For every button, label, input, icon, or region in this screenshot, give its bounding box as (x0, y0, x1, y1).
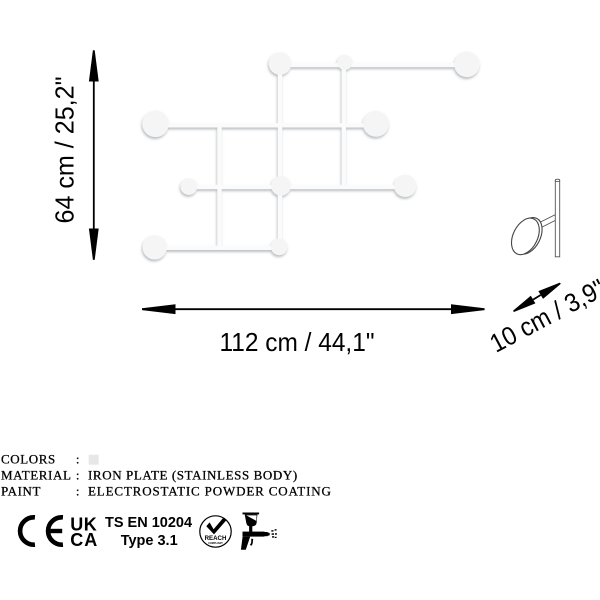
svg-text:64 cm / 25,2": 64 cm / 25,2" (50, 77, 80, 224)
svg-text::: : (76, 484, 80, 499)
svg-text:CA: CA (70, 530, 98, 550)
svg-text:MATERIAL: MATERIAL (1, 468, 72, 483)
svg-text::: : (76, 468, 80, 483)
svg-text:COLORS: COLORS (1, 452, 56, 467)
svg-text:112 cm / 44,1": 112 cm / 44,1" (220, 327, 375, 357)
svg-text:ELECTROSTATIC POWDER COATING: ELECTROSTATIC POWDER COATING (88, 484, 332, 499)
svg-text:COMPLIANT: COMPLIANT (208, 541, 223, 545)
svg-text:IRON PLATE (STAINLESS BODY): IRON PLATE (STAINLESS BODY) (88, 468, 298, 483)
svg-text:PAINT: PAINT (1, 484, 41, 499)
svg-text:Type 3.1: Type 3.1 (121, 533, 178, 549)
svg-text:TS EN 10204: TS EN 10204 (105, 515, 192, 531)
svg-text:10 cm / 3,9": 10 cm / 3,9" (485, 273, 600, 359)
svg-text::: : (76, 452, 80, 467)
